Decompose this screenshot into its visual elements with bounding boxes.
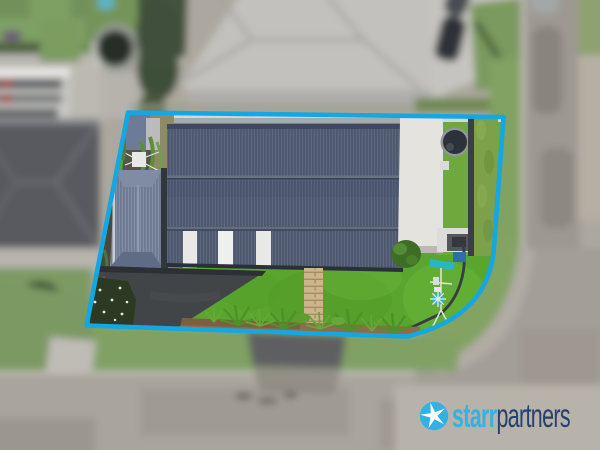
svg-text:starrpartners: starrpartners: [452, 397, 570, 434]
